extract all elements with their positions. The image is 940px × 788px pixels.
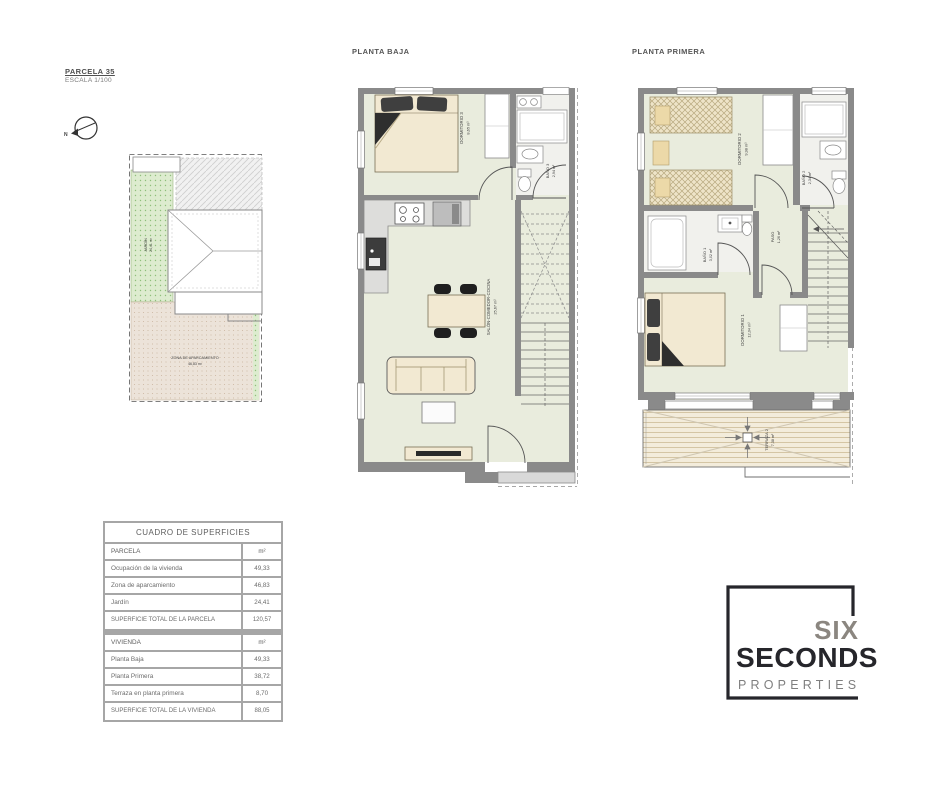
plan-title-primera: PLANTA PRIMERA [632,47,705,56]
svg-text:2,34 m²: 2,34 m² [808,171,812,184]
vent-window [543,88,569,95]
svg-text:9,98 m²: 9,98 m² [744,142,749,156]
svg-text:3,02 m²: 3,02 m² [709,248,713,261]
sink-icon [820,141,846,159]
six-seconds-properties-logo: SIX SECONDS PROPERTIES [725,584,877,708]
svg-text:1,26 m²: 1,26 m² [777,230,781,243]
label-dormitorio2: DORMITORIO 2 [737,133,742,165]
label-dormitorio3: DORMITORIO 3 [459,112,464,144]
sofa-icon [387,357,475,394]
planta-primera-drawing: DORMITORIO 2 9,98 m² BAÑO 2 2,34 m² BAÑO… [622,83,857,488]
label-paso: PASO [770,232,775,243]
svg-text:24,41 m²: 24,41 m² [149,237,153,252]
table-row: Terraza en planta primera 8,70 [105,686,281,701]
terrace-drain [743,433,752,442]
toilet-tank [832,171,846,179]
svg-text:12,04 m²: 12,04 m² [747,322,752,338]
garden-strip [253,302,259,400]
sink-icon [517,146,543,163]
logo-word-six: SIX [814,617,859,643]
label-terraza2: TERRAZA 2 [764,428,769,451]
label-bano1: BAÑO 1 [702,247,707,262]
logo-word-properties: PROPERTIES [738,679,860,692]
surfaces-table-title: CUADRO DE SUPERFICIES [105,523,281,542]
double-bed-icon [645,293,725,366]
kitchen-appliance [433,202,461,226]
garden-area [131,170,173,302]
svg-text:25,67 m²: 25,67 m² [493,299,498,315]
entry-porch [498,472,575,483]
north-arrow-icon: N [62,106,106,150]
neighbor-roof [176,158,262,213]
planta-baja-drawing: DORMITORIO 3 8,65 m² BAÑO 3 2,94 m² SALÓ… [355,83,580,488]
toilet-tank [518,169,531,177]
double-bed-icon [375,95,458,172]
label-bano3: BAÑO 3 [545,163,550,178]
parcel-title: PARCELA 35 [65,67,115,76]
coffee-table [422,402,455,423]
tv-bench [405,447,472,460]
table-row-parcela-header: PARCELA m² [105,544,281,559]
table-row-vivienda-total: SUPERFICIE TOTAL DE LA VIVIENDA 88,05 [105,703,281,720]
surfaces-table: CUADRO DE SUPERFICIES PARCELA m² Ocupaci… [103,521,283,722]
nightstand [653,141,669,165]
front-structure [133,157,180,172]
svg-text:46,83 m²: 46,83 m² [188,362,203,366]
site-plan-drawing: JARDÍN 24,41 m² ZONA DE APARCAMIENTO 46,… [128,153,263,403]
svg-text:8,65 m²: 8,65 m² [466,121,471,135]
table-row: Ocupación de la vivienda 49,33 [105,561,281,576]
logo-word-seconds: SECONDS [736,644,878,672]
svg-text:2,94 m²: 2,94 m² [552,164,556,177]
svg-text:ZONA DE APARCAMIENTO: ZONA DE APARCAMIENTO [171,356,219,360]
label-salon: SALÓN-COMEDOR-COCINA [486,279,491,336]
svg-text:JARDÍN: JARDÍN [144,238,148,252]
toilet-bowl [833,179,845,194]
bathtub-icon [648,216,686,270]
table-row: Planta Baja 49,33 [105,652,281,667]
table-row-parcela-total: SUPERFICIE TOTAL DE LA PARCELA 120,57 [105,612,281,629]
svg-text:7,38 m²: 7,38 m² [771,433,775,446]
label-bano2: BAÑO 2 [801,170,806,185]
parcel-header: PARCELA 35 ESCALA 1/100 [65,67,115,84]
terrace [643,410,850,477]
plan-title-baja: PLANTA BAJA [352,47,410,56]
svg-text:N: N [64,132,68,138]
blueprint-page: { "meta": { "parcela_title": "PARCELA 35… [0,0,940,788]
table-row: Zona de aparcamiento 46,83 [105,578,281,593]
label-dormitorio1: DORMITORIO 1 [740,314,745,346]
kitchen-sink-icon [366,238,386,270]
scale-label: ESCALA 1/100 [65,77,115,84]
toilet-bowl [519,177,531,192]
garden-label: JARDÍN 24,41 m² [144,237,153,252]
stove-icon [395,203,424,224]
shower-tray [802,102,846,137]
house-roof [168,210,262,321]
toilet-tank [742,215,752,222]
table-row-vivienda-header: VIVIENDA m² [105,635,281,650]
shower-tray [517,110,567,143]
toilet-bowl [742,223,752,236]
table-row: Jardín 24,41 [105,595,281,610]
parking-area [131,302,259,400]
table-row: Planta Primera 38,72 [105,669,281,684]
